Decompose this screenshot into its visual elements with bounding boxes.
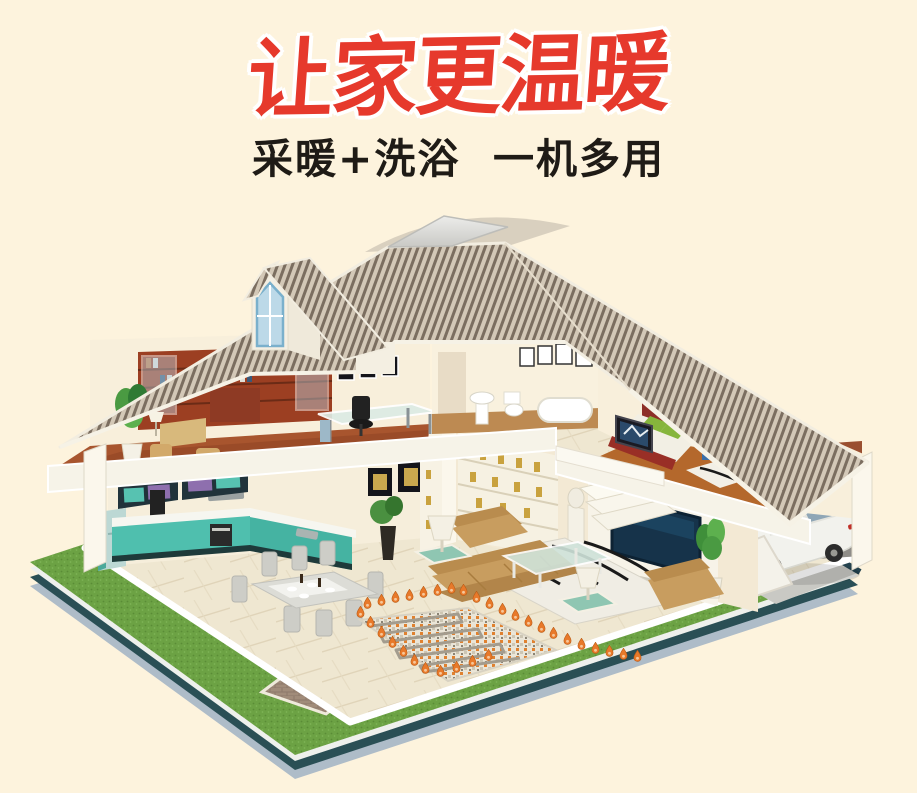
range-hood xyxy=(150,490,165,516)
red-cabinet xyxy=(210,388,260,422)
poster: 让家更温暖 采暖+洗浴 一机多用 xyxy=(0,0,917,793)
left-gable-wall xyxy=(84,444,106,572)
poster-title: 让家更温暖 xyxy=(0,0,917,139)
poster-subtitle: 采暖+洗浴 一机多用 xyxy=(0,125,917,185)
hall-doorway xyxy=(438,352,466,422)
bathtub xyxy=(538,398,592,422)
oven xyxy=(210,524,232,546)
sculpture xyxy=(568,488,584,545)
toilet xyxy=(504,392,523,416)
house-illustration xyxy=(0,185,917,793)
